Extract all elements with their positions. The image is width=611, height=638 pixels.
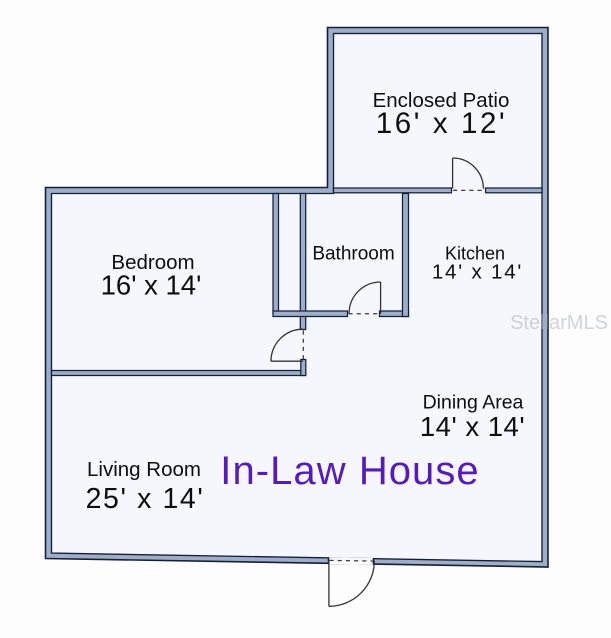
svg-text:16' x 14': 16' x 14': [101, 270, 202, 301]
svg-text:StellarMLS: StellarMLS: [510, 312, 608, 334]
svg-text:In-Law House: In-Law House: [220, 449, 479, 493]
svg-text:Bathroom: Bathroom: [312, 244, 394, 265]
svg-text:14' x 14': 14' x 14': [420, 411, 525, 442]
svg-text:25' x 14': 25' x 14': [86, 483, 205, 515]
svg-text:Living Room: Living Room: [87, 458, 201, 481]
svg-text:16' x 12': 16' x 12': [376, 107, 507, 140]
svg-text:14' x 14': 14' x 14': [432, 261, 523, 284]
